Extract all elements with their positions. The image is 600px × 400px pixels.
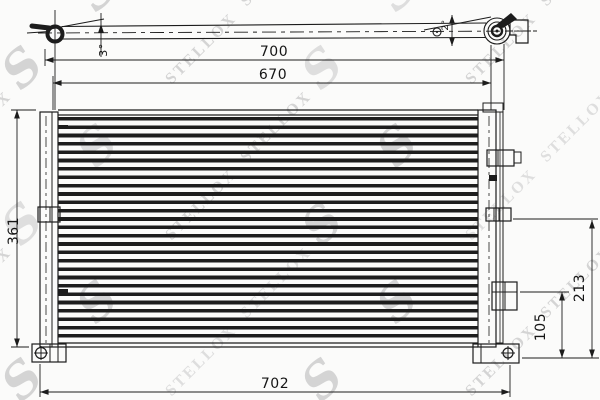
receiver-drier-tube	[483, 103, 503, 343]
left-tank	[40, 112, 58, 347]
dim-right-large-label: 213	[572, 268, 588, 308]
angle-left-label: 3°	[96, 36, 112, 64]
dim-mid-length-label: 670	[249, 67, 297, 83]
dim-lines-main	[11, 110, 599, 397]
core-side-plates	[58, 110, 478, 347]
right-tank	[478, 110, 496, 347]
side-view-bar	[38, 23, 536, 39]
technical-drawing-canvas: STELLOXSSTELLOXSSTELLOXSSSTELLOXSSTELLOX…	[0, 0, 600, 400]
connector-mid	[486, 208, 511, 221]
dim-right-small-label: 105	[533, 307, 549, 347]
connector-upper	[487, 150, 521, 166]
tube-end-plug-upper	[58, 125, 68, 129]
side-view-right-fitting	[484, 13, 537, 44]
angle-right-callout	[424, 15, 491, 46]
dim-bottom-length-label: 702	[251, 376, 299, 392]
side-view-left-clip	[27, 26, 49, 33]
dim-top-length-label: 700	[250, 44, 298, 60]
weld-mark	[489, 175, 497, 181]
left-mid-bracket	[38, 207, 60, 222]
tube-end-plug-lower	[58, 289, 68, 293]
condenser-line-drawing	[0, 0, 600, 400]
dim-left-height-label: 361	[6, 211, 22, 251]
front-view	[32, 103, 521, 363]
angle-right-label: 2°	[438, 11, 454, 39]
